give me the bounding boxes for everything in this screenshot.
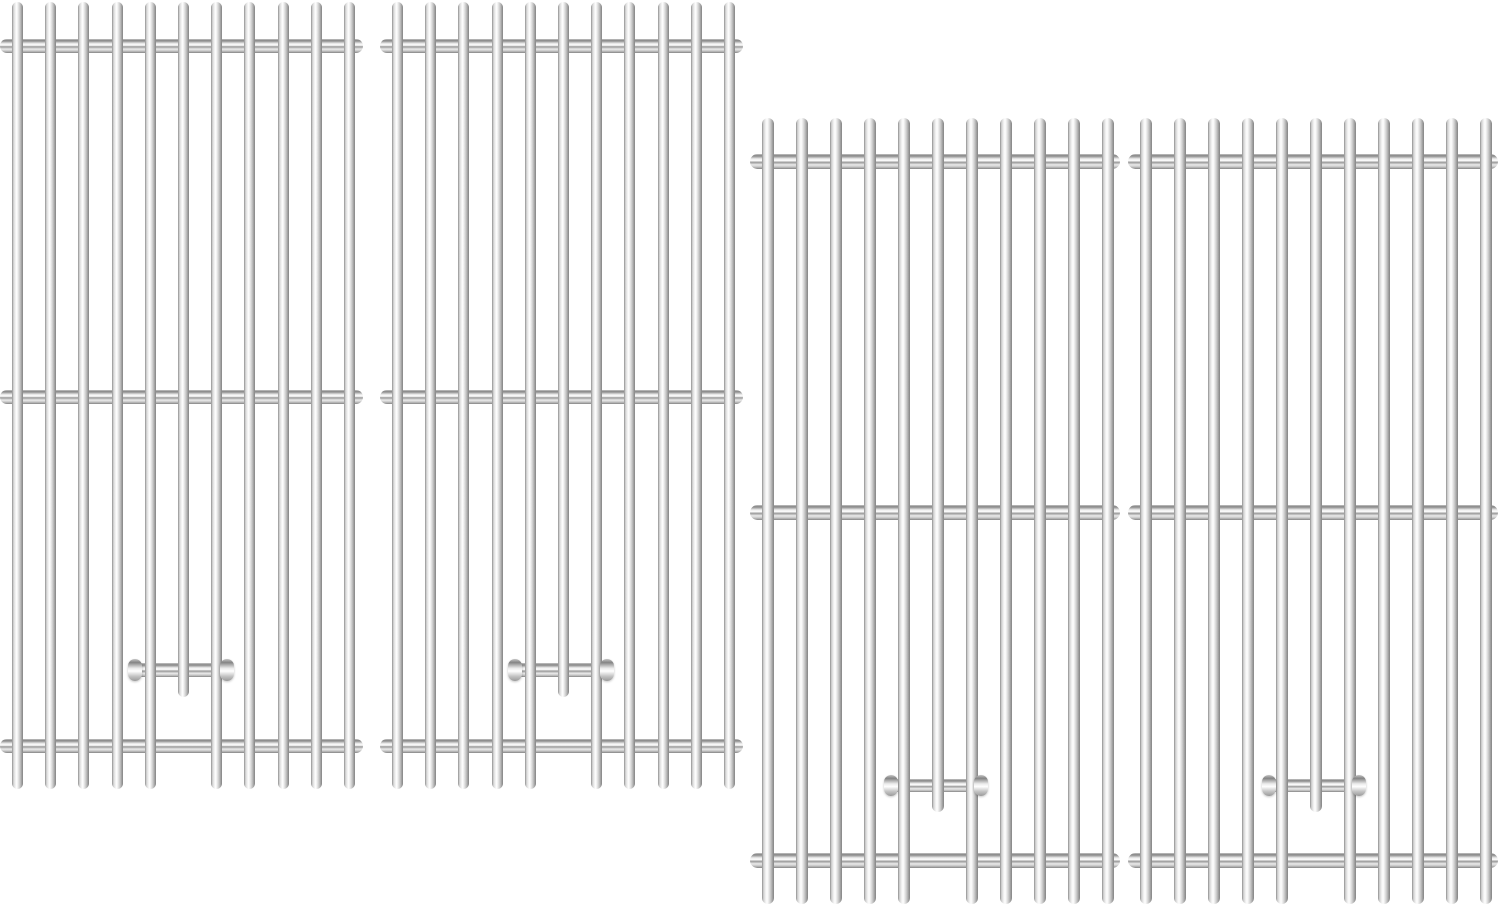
grate-rod-short: [558, 2, 569, 697]
grill-grate-panel-2: [385, 2, 735, 789]
grate-rod-short: [1310, 118, 1322, 812]
mounting-bracket-right-cap: [600, 659, 614, 681]
grate-rod: [1208, 118, 1220, 904]
grate-rod: [898, 118, 910, 904]
grate-rod: [458, 2, 469, 789]
grate-rod: [1000, 118, 1012, 904]
grate-rod: [658, 2, 669, 789]
mounting-bracket-right-cap: [974, 775, 988, 796]
grate-rod-short: [178, 2, 189, 697]
grate-rod: [45, 2, 56, 789]
mounting-bracket-left-cap: [1262, 775, 1276, 796]
grate-rod: [624, 2, 635, 789]
grate-rod: [1174, 118, 1186, 904]
grate-rod: [1276, 118, 1288, 904]
grill-grate-panel-3: [756, 118, 1114, 904]
grate-rod: [1034, 118, 1046, 904]
grate-rod: [1378, 118, 1390, 904]
grate-rod: [1412, 118, 1424, 904]
grate-rod: [244, 2, 255, 789]
grate-rod: [1068, 118, 1080, 904]
grate-rod: [1446, 118, 1458, 904]
grate-rod: [145, 2, 156, 789]
mounting-bracket-left-cap: [508, 659, 522, 681]
grate-rod: [762, 118, 774, 904]
grill-grate-panel-4: [1134, 118, 1492, 904]
mounting-bracket-right-cap: [1352, 775, 1366, 796]
grate-rod: [1242, 118, 1254, 904]
grate-rod: [864, 118, 876, 904]
grate-rod: [724, 2, 735, 789]
grate-rod: [1480, 118, 1492, 904]
grate-rod: [691, 2, 702, 789]
grate-rod: [1140, 118, 1152, 904]
grate-rod: [12, 2, 23, 789]
grate-rod: [344, 2, 355, 789]
grate-rod: [830, 118, 842, 904]
grate-rod: [392, 2, 403, 789]
product-photo-stage: [0, 0, 1500, 911]
grate-rod: [311, 2, 322, 789]
grate-rod: [112, 2, 123, 789]
grill-grate-panel-1: [5, 2, 355, 789]
grate-rod-short: [932, 118, 944, 812]
grate-rod: [525, 2, 536, 789]
mounting-bracket-left-cap: [884, 775, 898, 796]
grate-rod: [425, 2, 436, 789]
grate-rod: [78, 2, 89, 789]
mounting-bracket-left-cap: [128, 659, 142, 681]
grate-rod: [1102, 118, 1114, 904]
grate-rod: [278, 2, 289, 789]
mounting-bracket-right-cap: [220, 659, 234, 681]
grate-rod: [796, 118, 808, 904]
grate-rod: [492, 2, 503, 789]
